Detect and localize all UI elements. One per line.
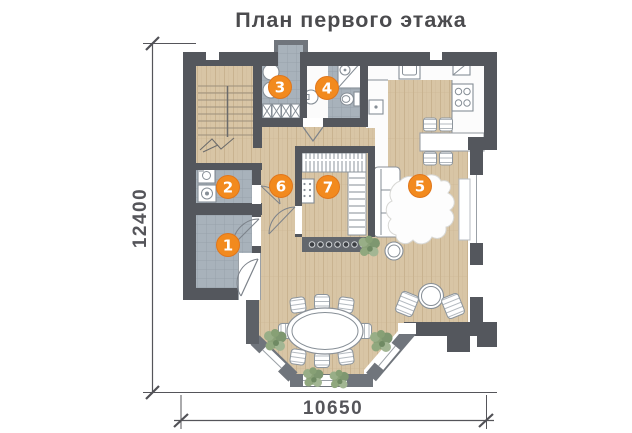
plant	[359, 236, 380, 257]
dimension-bottom: 10650	[143, 393, 497, 430]
stove	[452, 84, 473, 111]
porch-block	[447, 336, 470, 352]
window-bottom-right	[398, 323, 416, 334]
left-wall	[183, 52, 196, 300]
room-marker-label-2: 2	[223, 178, 233, 196]
plant	[370, 330, 393, 352]
room-marker-label-3: 3	[275, 78, 285, 96]
room-marker-label-4: 4	[322, 79, 332, 97]
bottom-right-corner	[477, 322, 497, 347]
door-gap-room2	[252, 185, 261, 204]
window-top-2	[430, 52, 442, 60]
window-right-1	[459, 175, 483, 243]
room-marker-label-6: 6	[276, 177, 286, 195]
floor-plan-page: 12400 10650 План первого этажа 1234567	[0, 0, 632, 433]
plant	[330, 370, 349, 389]
wardrobe-right-wall	[368, 146, 375, 237]
room-marker-label-7: 7	[323, 178, 333, 196]
coffee-table	[419, 284, 444, 309]
right-wall-kitchen	[484, 52, 497, 141]
plant	[264, 329, 287, 351]
plant	[303, 367, 323, 387]
room-marker-label-1: 1	[223, 236, 233, 254]
dining-table	[287, 308, 363, 354]
top-wall	[306, 52, 497, 66]
window-top-1	[206, 52, 219, 60]
room-marker-label-5: 5	[415, 177, 425, 195]
terrace-side-wall	[246, 294, 259, 344]
stair-laundry-wall	[253, 52, 262, 148]
kitchen-floor-strip	[375, 146, 388, 167]
floor-plan-drawing: 12400 10650 План первого этажа 1234567	[0, 0, 632, 433]
bath-kitchen-wall	[360, 52, 368, 127]
door-gap-wardrobe	[295, 206, 302, 234]
laundry-bath-wall	[300, 52, 307, 118]
top-wall	[183, 52, 278, 66]
door-gap-bath	[303, 118, 323, 127]
entrance-door	[237, 253, 261, 300]
dimension-width-label: 10650	[303, 398, 363, 419]
floor-drain	[369, 100, 383, 114]
wc-top-wall	[188, 163, 262, 170]
side-table	[385, 242, 403, 260]
laundry-baskets	[263, 104, 301, 118]
wc-fixtures	[198, 168, 216, 202]
dimension-height-label: 12400	[130, 188, 151, 248]
wardrobe-top-wall	[295, 146, 375, 153]
toilet	[341, 92, 361, 106]
window-right-2	[470, 265, 483, 297]
wc-bottom-wall	[188, 203, 262, 215]
page-title: План первого этажа	[235, 8, 467, 32]
